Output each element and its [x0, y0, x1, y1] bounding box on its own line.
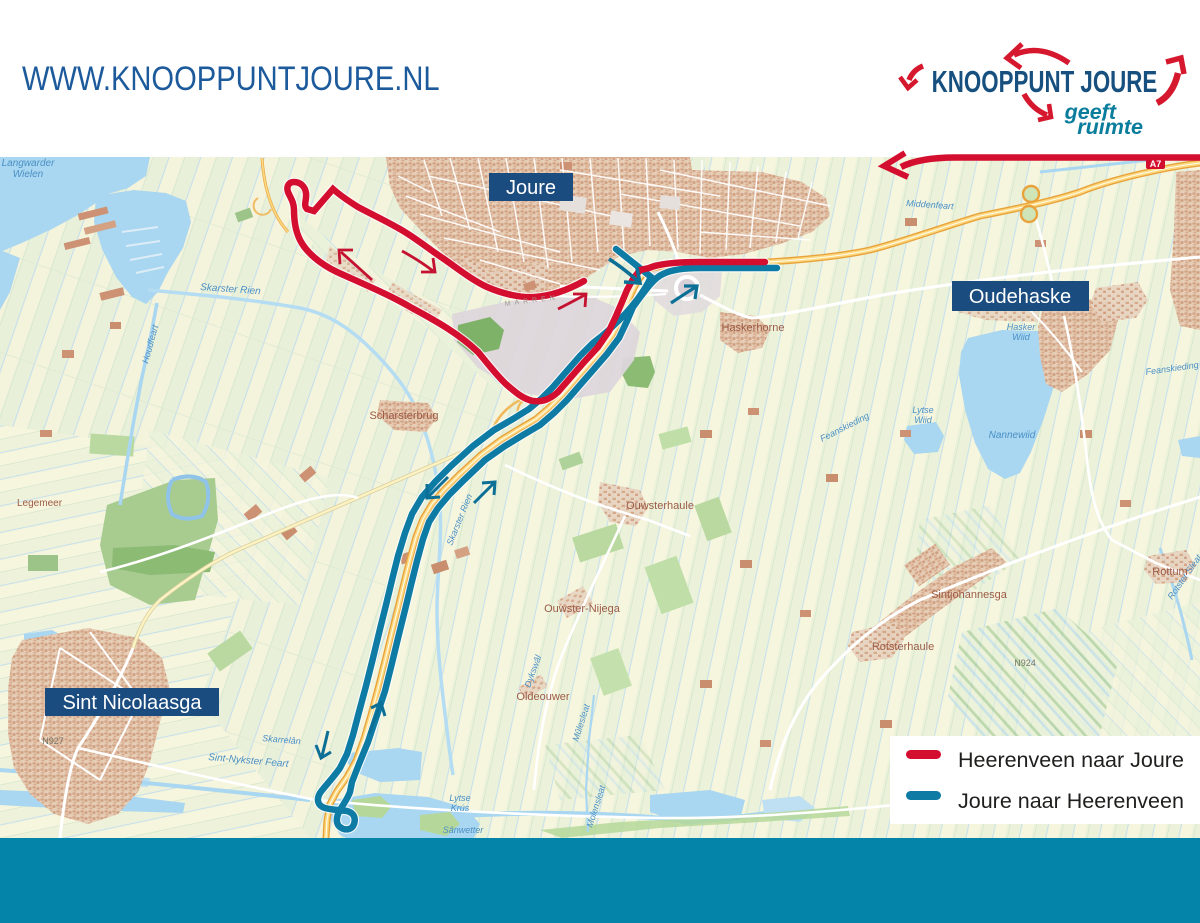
svg-text:Wiid: Wiid	[914, 415, 932, 425]
svg-text:Haskerhorne: Haskerhorne	[722, 322, 785, 334]
svg-text:Hasker: Hasker	[1007, 322, 1037, 332]
svg-text:Oudehaske: Oudehaske	[969, 286, 1071, 308]
svg-text:Ouwsterhaule: Ouwsterhaule	[626, 500, 694, 512]
svg-text:Rottum: Rottum	[1152, 566, 1187, 578]
svg-text:Ouwster-Nijega: Ouwster-Nijega	[544, 603, 621, 615]
svg-text:Wiid: Wiid	[1012, 332, 1030, 342]
svg-text:Joure: Joure	[506, 177, 556, 199]
svg-text:Scharsterbrug: Scharsterbrug	[369, 410, 438, 422]
svg-text:Oldeouwer: Oldeouwer	[516, 691, 570, 703]
svg-text:KNOOPPUNT JOURE: KNOOPPUNT JOURE	[932, 64, 1158, 98]
svg-text:Wielen: Wielen	[13, 169, 44, 180]
svg-text:Lytse: Lytse	[912, 405, 933, 415]
svg-text:Nannewiid: Nannewiid	[989, 430, 1036, 441]
svg-text:N927: N927	[42, 736, 64, 746]
svg-text:Lytse: Lytse	[449, 793, 470, 803]
svg-text:A7: A7	[1150, 159, 1162, 169]
svg-text:Sânwetter: Sânwetter	[443, 825, 485, 835]
svg-text:Legemeer: Legemeer	[17, 498, 63, 509]
svg-text:N924: N924	[1014, 658, 1036, 668]
svg-text:Krús: Krús	[451, 803, 470, 813]
svg-text:Heerenveen naar Joure: Heerenveen naar Joure	[958, 748, 1184, 772]
svg-text:Joure naar Heerenveen: Joure naar Heerenveen	[958, 789, 1184, 813]
svg-text:ruimte: ruimte	[1077, 115, 1143, 139]
svg-text:Langwarder: Langwarder	[2, 158, 55, 169]
svg-text:Sintjohannesga: Sintjohannesga	[931, 589, 1008, 601]
svg-text:Rotsterhaule: Rotsterhaule	[872, 641, 934, 653]
svg-text:Sint Nicolaasga: Sint Nicolaasga	[63, 692, 203, 714]
svg-text:WWW.KNOOPPUNTJOURE.NL: WWW.KNOOPPUNTJOURE.NL	[22, 59, 440, 98]
